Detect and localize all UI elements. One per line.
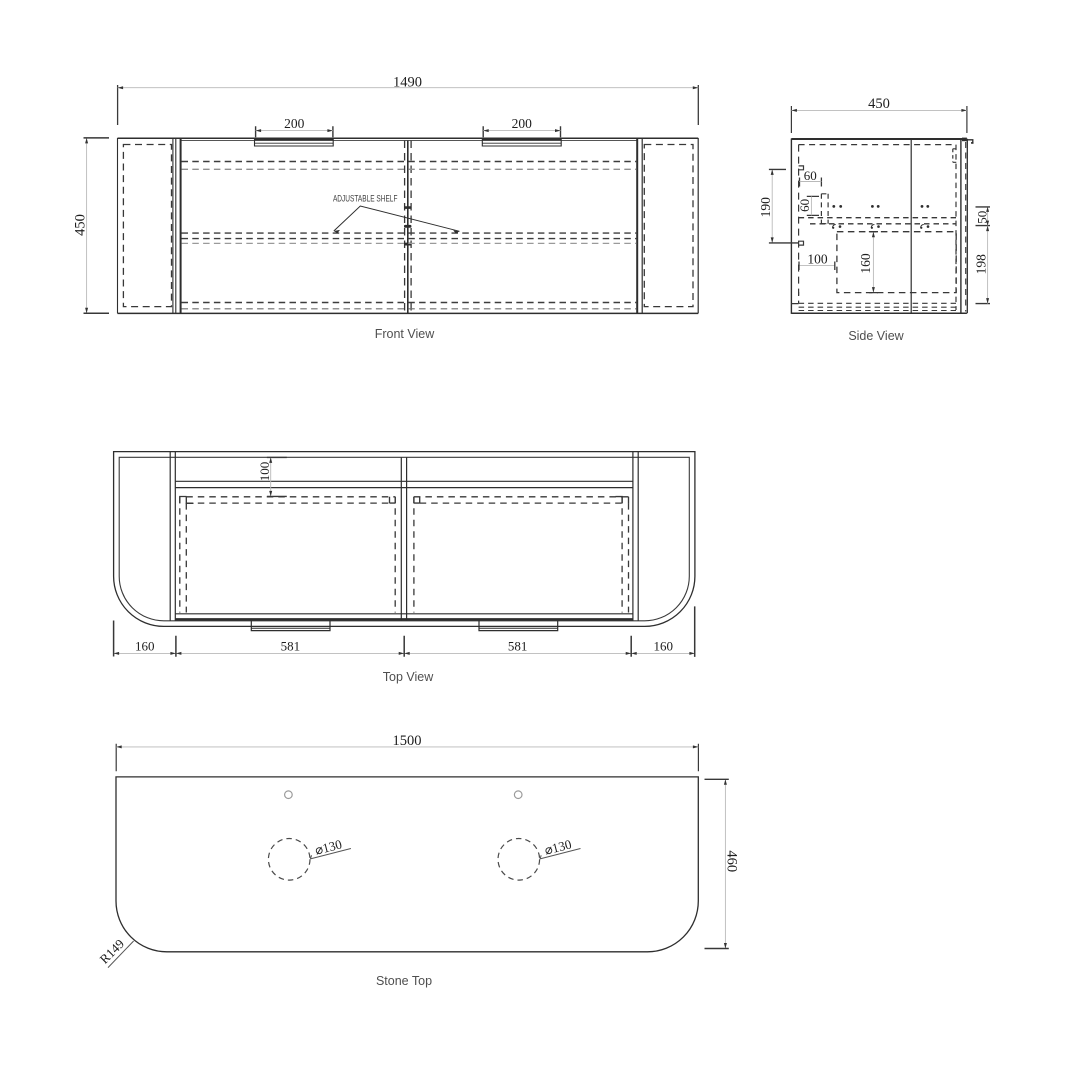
svg-text:160: 160 [654,639,674,654]
svg-text:Side View: Side View [848,329,904,343]
svg-text:Top View: Top View [383,670,434,684]
svg-text:1500: 1500 [393,733,422,749]
svg-text:581: 581 [281,639,301,654]
svg-text:200: 200 [512,116,533,131]
svg-text:100: 100 [257,462,272,482]
svg-text:60: 60 [797,199,812,212]
svg-text:450: 450 [73,214,89,236]
svg-text:160: 160 [858,253,873,274]
svg-text:200: 200 [284,116,305,131]
svg-text:198: 198 [973,254,988,275]
svg-text:160: 160 [135,639,155,654]
svg-text:1490: 1490 [393,75,422,91]
svg-text:460: 460 [723,850,739,872]
svg-text:ADJUSTABLE SHELF: ADJUSTABLE SHELF [333,194,398,204]
svg-text:100: 100 [807,251,828,266]
svg-text:Stone Top: Stone Top [376,974,432,988]
svg-text:50: 50 [974,211,989,224]
svg-text:190: 190 [758,197,773,218]
svg-text:581: 581 [508,639,528,654]
svg-text:450: 450 [868,96,890,112]
svg-text:Front View: Front View [375,327,435,341]
svg-text:60: 60 [804,168,817,183]
